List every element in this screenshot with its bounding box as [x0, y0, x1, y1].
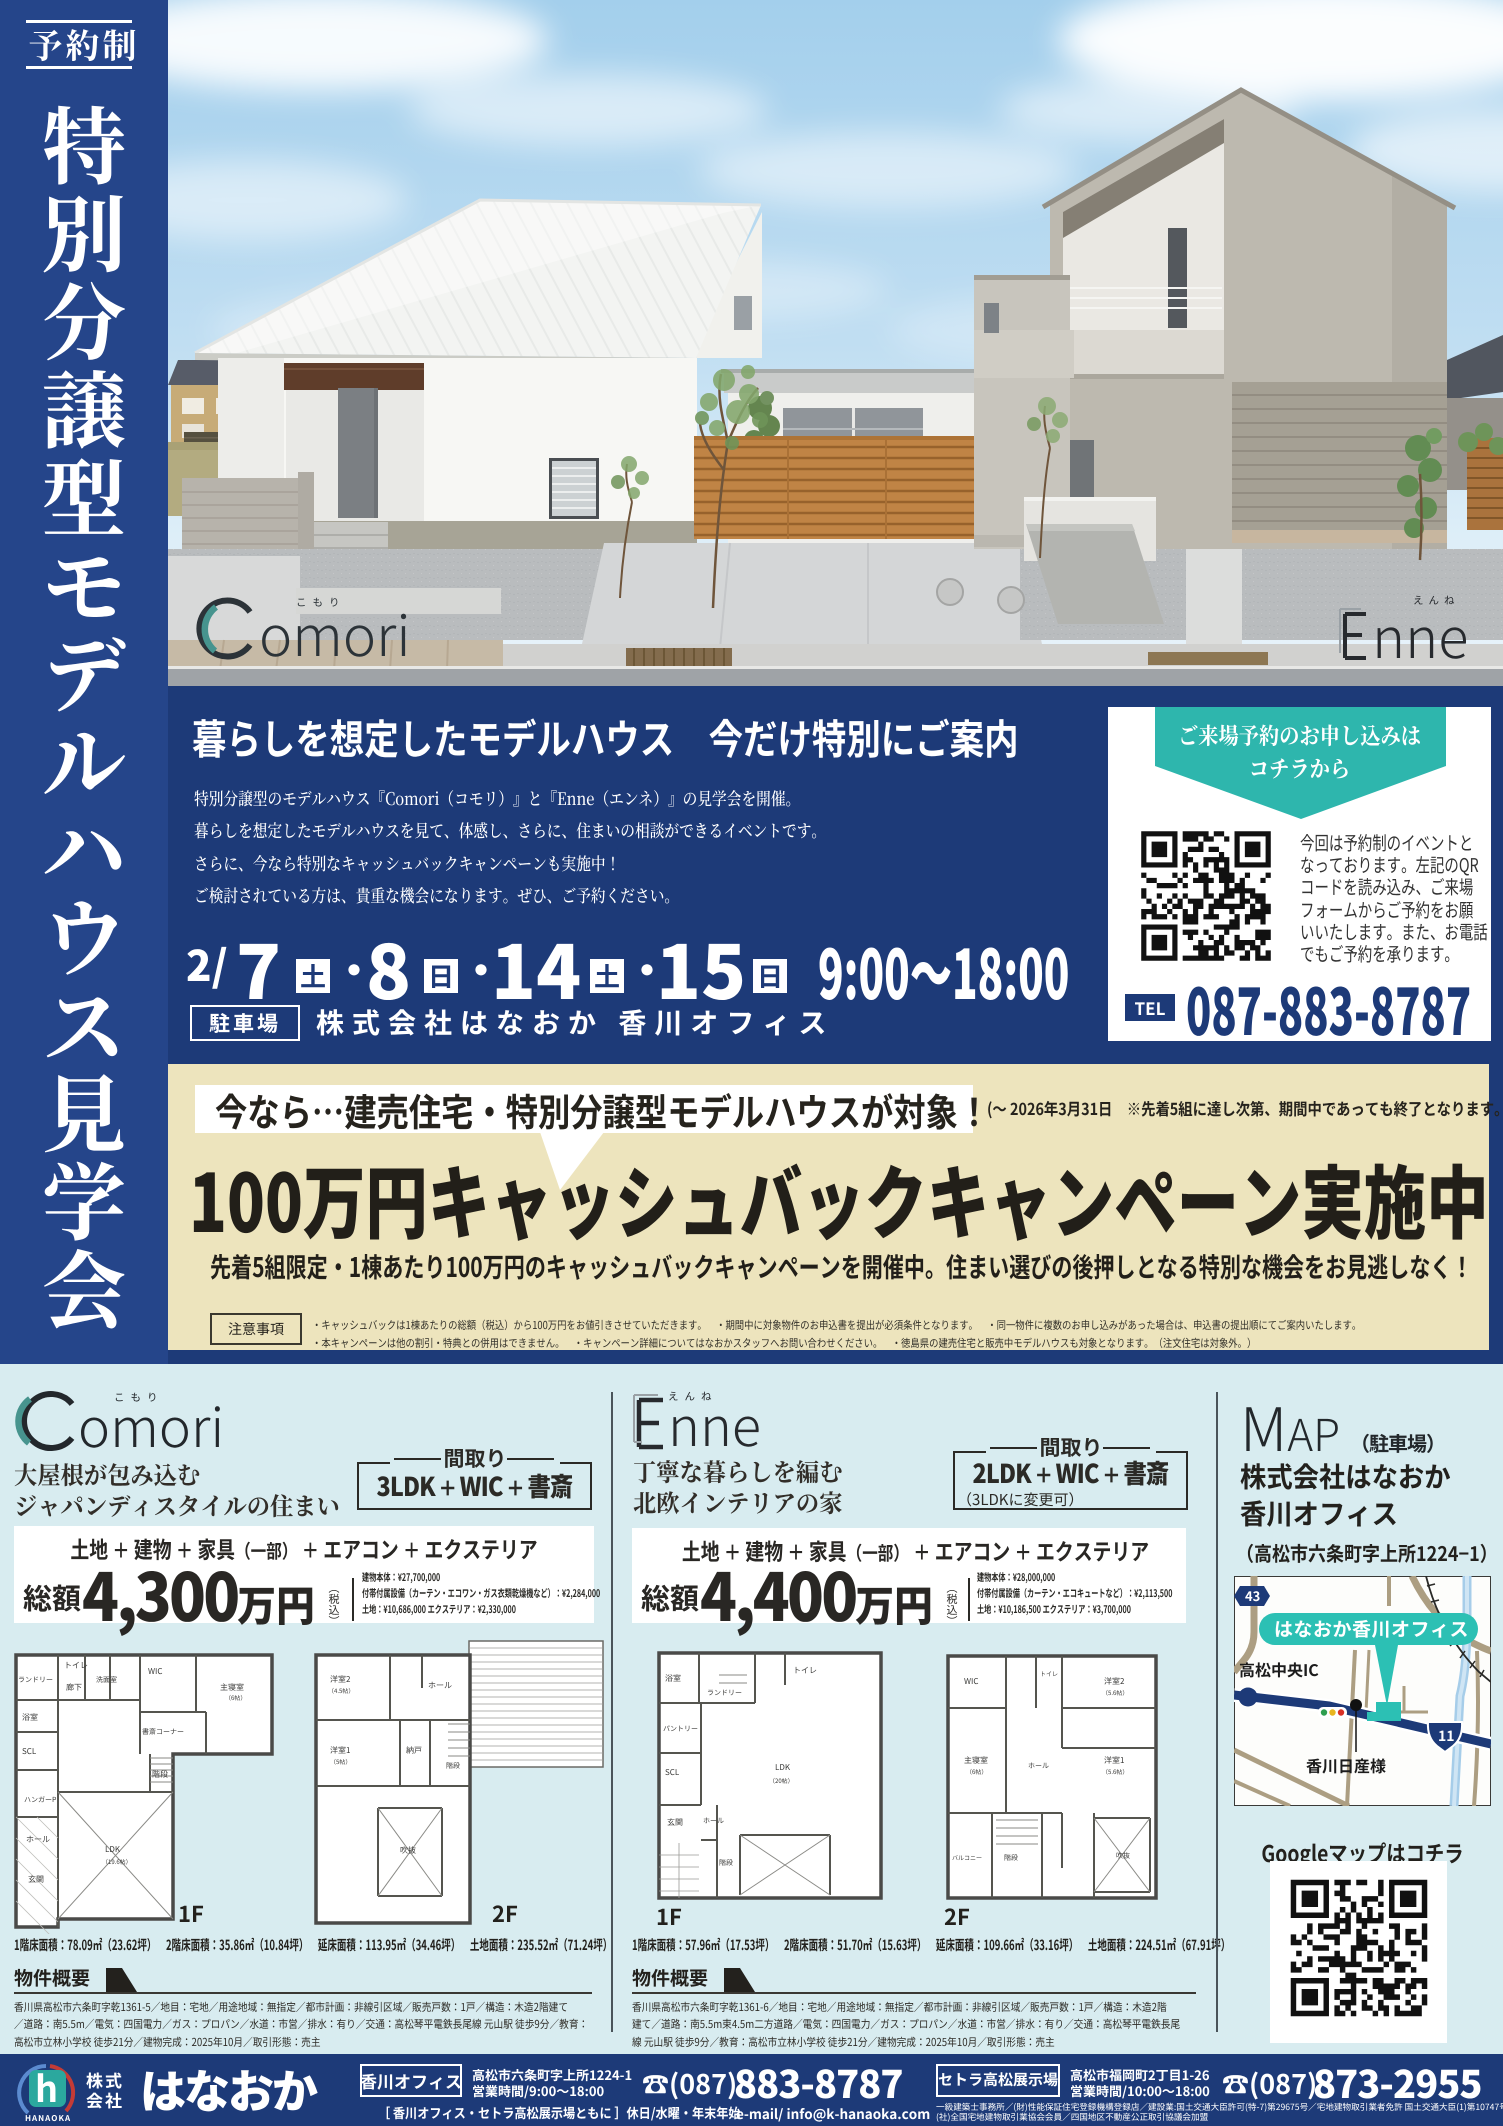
svg-text:高松中央IC: 高松中央IC [1239, 1657, 1319, 1681]
svg-text:はなおか香川オフィス: はなおか香川オフィス [1274, 1615, 1469, 1642]
svg-text:玄関: 玄関 [667, 1817, 683, 1828]
svg-text:香川日産様: 香川日産様 [1306, 1753, 1386, 1777]
svg-text:SCL: SCL [665, 1767, 680, 1778]
svg-text:43: 43 [1245, 1586, 1260, 1605]
svg-text:主寝室: 主寝室 [964, 1755, 988, 1766]
svg-text:（19.6帖）: （19.6帖） [102, 1857, 132, 1866]
svg-text:トイレ: トイレ [793, 1665, 817, 1676]
svg-text:こもり: こもり [114, 1390, 164, 1405]
svg-text:えんね: えんね [668, 1389, 718, 1404]
svg-text:主寝室: 主寝室 [220, 1682, 244, 1693]
svg-text:ハンガーP: ハンガーP [24, 1795, 57, 1805]
svg-text:洋室2: 洋室2 [330, 1674, 351, 1685]
svg-text:トイレ: トイレ [1040, 1669, 1058, 1678]
svg-text:（20帖）: （20帖） [769, 1776, 794, 1785]
svg-text:（6帖）: （6帖） [225, 1693, 246, 1702]
svg-text:階段: 階段 [719, 1858, 733, 1868]
svg-text:階段: 階段 [446, 1761, 460, 1771]
svg-text:パントリー: パントリー [663, 1724, 698, 1734]
svg-text:SCL: SCL [22, 1746, 37, 1757]
svg-text:書斎コーナー: 書斎コーナー [142, 1727, 184, 1737]
svg-text:（5.6帖）: （5.6帖） [1102, 1688, 1128, 1697]
svg-text:浴室: 浴室 [665, 1673, 681, 1684]
svg-text:洋室1: 洋室1 [330, 1745, 350, 1756]
svg-text:洋室2: 洋室2 [1104, 1676, 1125, 1687]
svg-text:えんね: えんね [1413, 593, 1460, 608]
svg-text:階段: 階段 [152, 1769, 168, 1780]
svg-text:吹抜: 吹抜 [400, 1845, 416, 1856]
svg-text:（5帖）: （5帖） [330, 1757, 351, 1766]
svg-text:ホール: ホール [26, 1834, 50, 1845]
svg-text:WIC: WIC [148, 1666, 162, 1677]
svg-text:バルコニー: バルコニー [952, 1853, 982, 1862]
svg-text:ランドリー: ランドリー [707, 1688, 742, 1698]
svg-text:廊下: 廊下 [66, 1682, 82, 1693]
svg-text:階段: 階段 [1004, 1853, 1018, 1863]
svg-text:HANAOKA: HANAOKA [25, 2113, 71, 2124]
svg-text:洗面室: 洗面室 [96, 1675, 117, 1685]
svg-text:h: h [35, 2062, 58, 2113]
svg-text:（6帖）: （6帖） [966, 1767, 987, 1776]
svg-text:WIC: WIC [964, 1676, 978, 1687]
svg-text:LDK: LDK [775, 1762, 791, 1773]
svg-text:納戸: 納戸 [406, 1745, 422, 1756]
svg-text:浴室: 浴室 [22, 1712, 38, 1723]
svg-text:ホール: ホール [428, 1680, 452, 1691]
svg-text:LDK: LDK [105, 1844, 121, 1855]
svg-text:吹抜: 吹抜 [1116, 1851, 1130, 1861]
svg-text:玄関: 玄関 [28, 1874, 44, 1885]
svg-text:こもり: こもり [296, 595, 346, 610]
svg-text:（5.6帖）: （5.6帖） [1102, 1767, 1128, 1776]
svg-text:ホール: ホール [703, 1816, 724, 1826]
svg-text:（4.5帖）: （4.5帖） [328, 1686, 354, 1695]
svg-text:11: 11 [1438, 1726, 1455, 1746]
svg-text:洋室1: 洋室1 [1104, 1755, 1124, 1766]
svg-text:トイレ: トイレ [64, 1660, 88, 1671]
svg-text:ランドリー: ランドリー [18, 1675, 53, 1685]
svg-text:ホール: ホール [1028, 1761, 1049, 1771]
